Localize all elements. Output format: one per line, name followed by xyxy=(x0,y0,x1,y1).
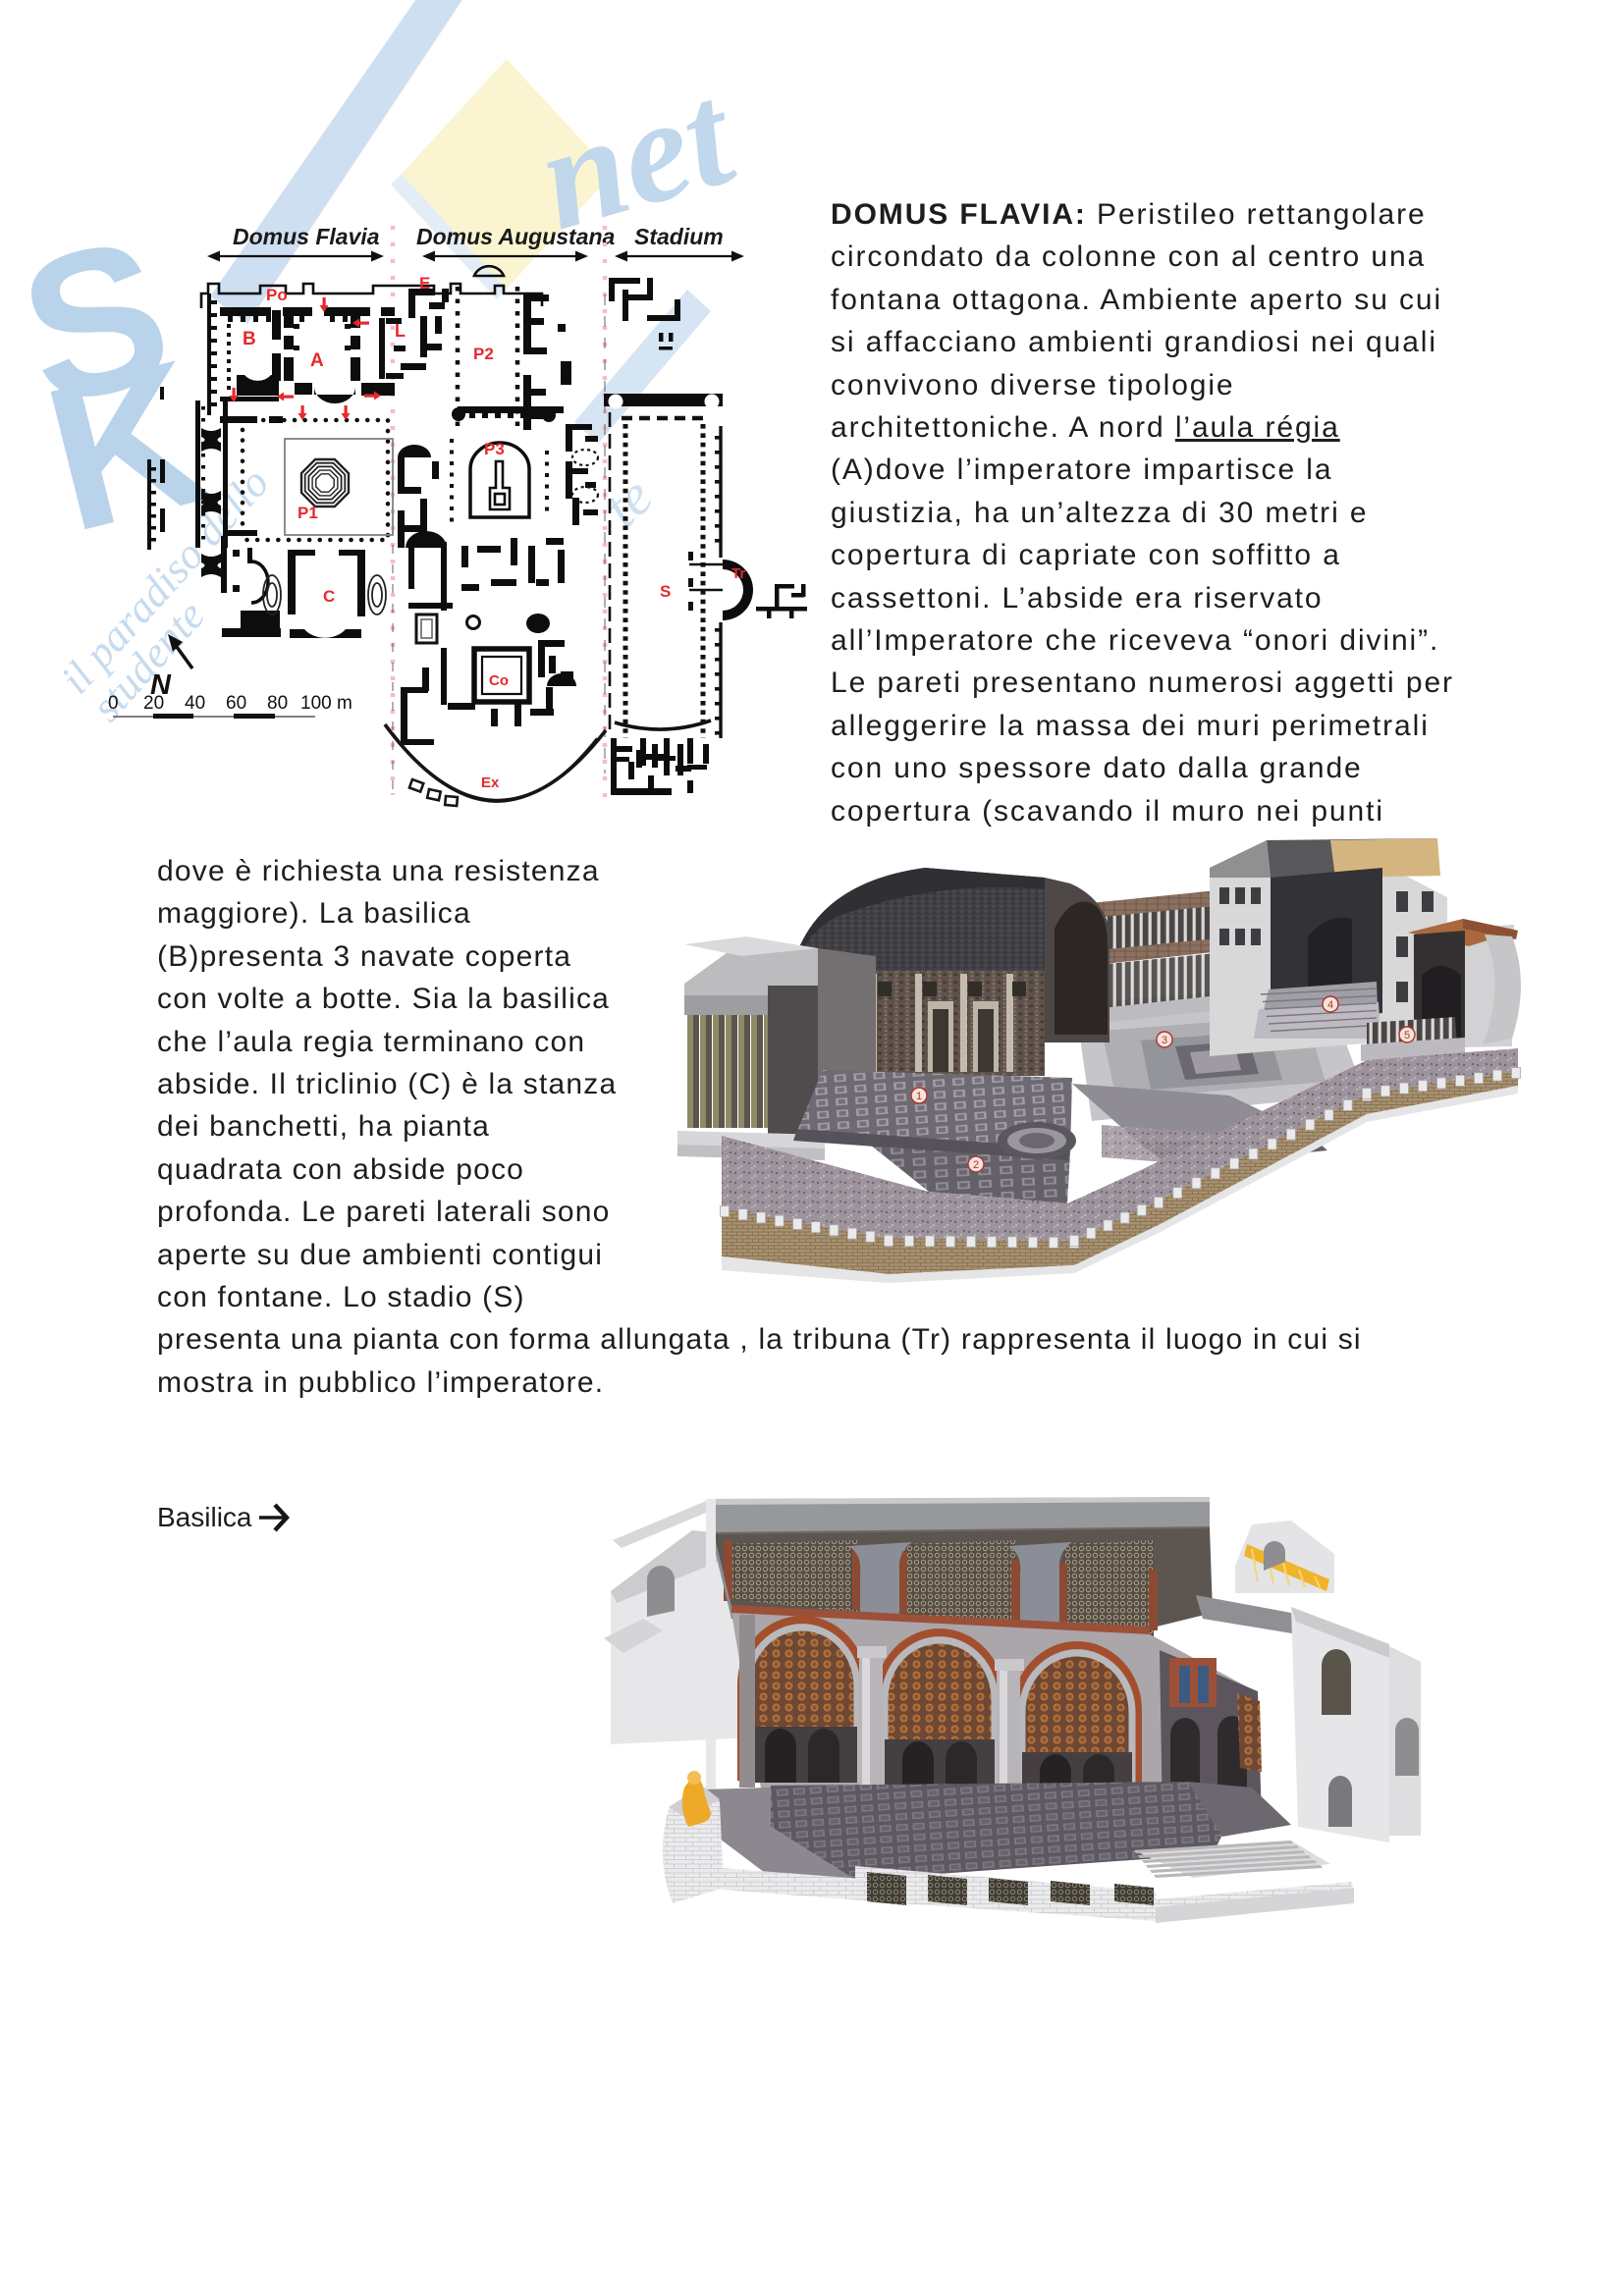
svg-text:P2: P2 xyxy=(473,345,494,363)
svg-text:Ex: Ex xyxy=(481,774,500,791)
svg-text:S: S xyxy=(660,582,671,601)
svg-text:20: 20 xyxy=(143,693,164,714)
svg-text:5: 5 xyxy=(1404,1030,1410,1041)
svg-text:C: C xyxy=(323,587,335,606)
svg-text:3: 3 xyxy=(1162,1035,1167,1046)
svg-text:L: L xyxy=(395,321,406,341)
svg-text:100 m: 100 m xyxy=(300,693,352,714)
svg-text:40: 40 xyxy=(185,693,205,714)
svg-text:P3: P3 xyxy=(484,440,505,458)
svg-text:Co: Co xyxy=(489,672,509,689)
svg-text:60: 60 xyxy=(226,693,246,714)
svg-text:A: A xyxy=(310,350,324,371)
svg-text:Tr: Tr xyxy=(731,565,745,582)
svg-text:P1: P1 xyxy=(298,504,318,522)
svg-text:1: 1 xyxy=(916,1091,922,1102)
svg-text:Domus Flavia: Domus Flavia xyxy=(233,224,380,249)
svg-text:80: 80 xyxy=(267,693,288,714)
svg-text:4: 4 xyxy=(1327,999,1333,1011)
svg-text:Po: Po xyxy=(266,286,288,304)
svg-text:E: E xyxy=(419,274,430,293)
svg-text:2: 2 xyxy=(973,1159,979,1171)
svg-text:B: B xyxy=(243,329,256,349)
svg-text:Stadium: Stadium xyxy=(634,224,724,249)
svg-text:0: 0 xyxy=(108,693,119,714)
svg-text:Domus Augustana: Domus Augustana xyxy=(416,224,616,249)
